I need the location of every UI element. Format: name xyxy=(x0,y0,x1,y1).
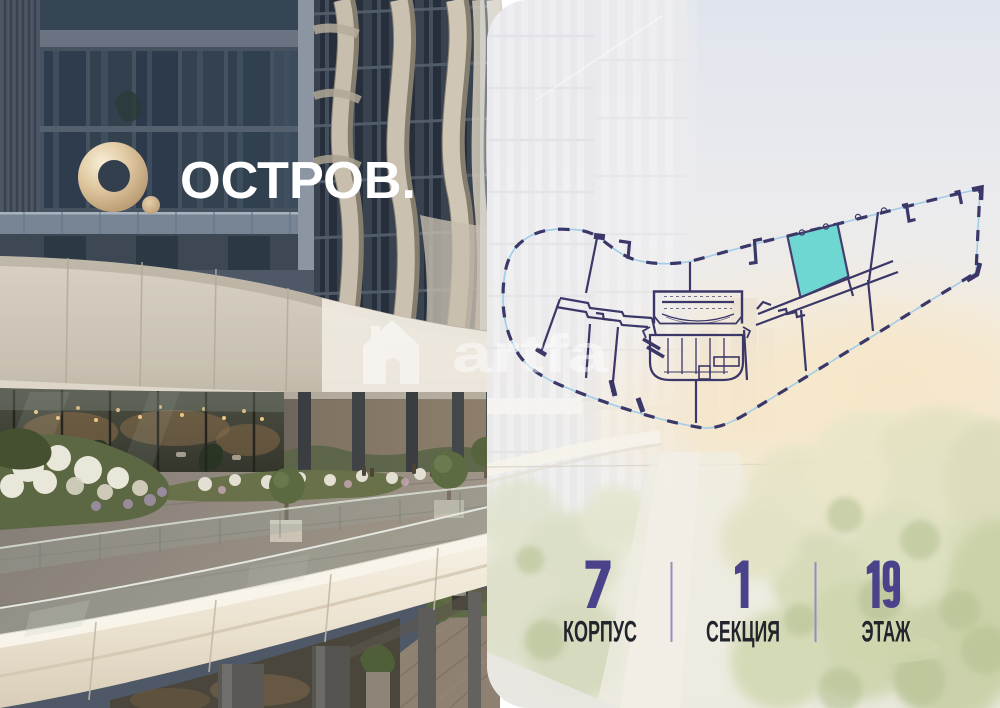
svg-text:КОРПУС: КОРПУС xyxy=(563,616,637,649)
svg-text:artfa: artfa xyxy=(452,324,609,384)
svg-text:ОСТРОВ.: ОСТРОВ. xyxy=(180,152,416,210)
svg-text:ЭТАЖ: ЭТАЖ xyxy=(862,616,911,649)
svg-text:СЕКЦИЯ: СЕКЦИЯ xyxy=(706,616,780,649)
